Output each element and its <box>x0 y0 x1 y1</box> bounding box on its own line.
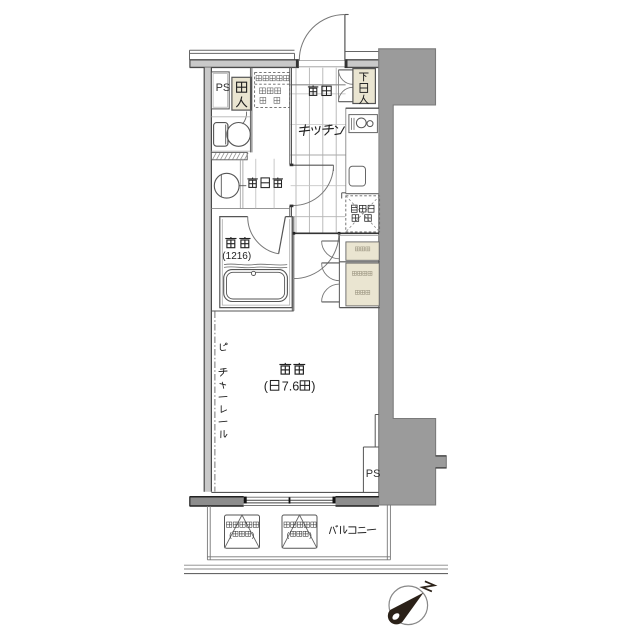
svg-text:): ) <box>311 380 315 394</box>
svg-text:7.6: 7.6 <box>282 380 300 394</box>
svg-text:PS: PS <box>216 82 231 94</box>
svg-text:(1216): (1216) <box>222 251 251 262</box>
svg-text:PS: PS <box>366 468 381 480</box>
